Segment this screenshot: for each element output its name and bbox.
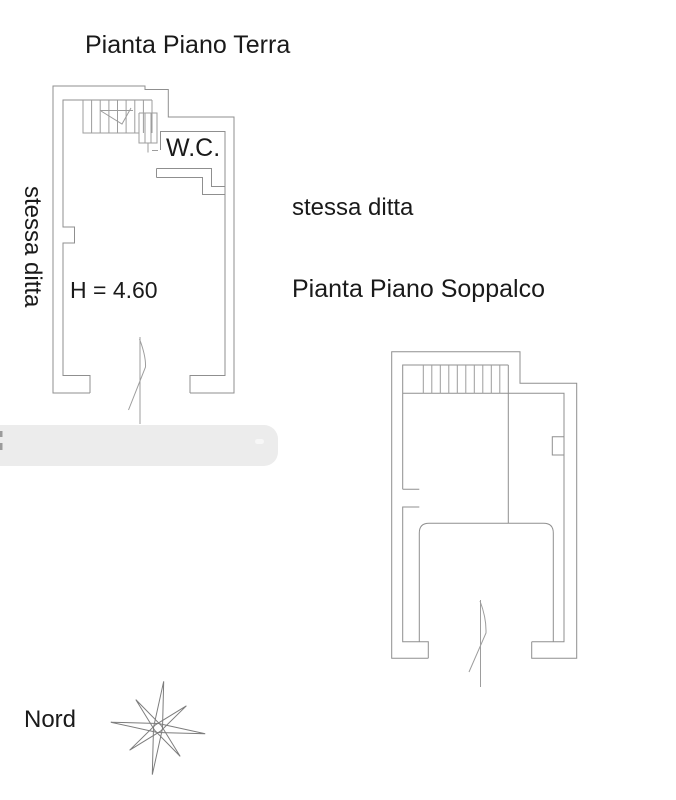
mezzanine-inner-wall-left — [403, 365, 509, 658]
floor-plan-sheet: Pianta Piano Terra stessa ditta W.C. H =… — [0, 0, 676, 800]
plan-drawing — [0, 0, 676, 800]
wc-partition-wall — [157, 169, 226, 195]
ground-floor-door-swing — [129, 337, 146, 424]
redaction-blur-band — [0, 425, 278, 466]
mezzanine-stairs — [423, 365, 500, 393]
neighbor-label-stessa-ditta: stessa ditta — [292, 196, 413, 220]
mezzanine-inner-wall-right — [403, 393, 564, 641]
mezzanine-wall-niche — [552, 437, 564, 455]
mezzanine-door-swing — [469, 600, 486, 687]
mezzanine-title: Pianta Piano Soppalco — [292, 277, 545, 302]
mezzanine-platform-edge — [419, 523, 553, 641]
north-label: Nord — [24, 708, 76, 732]
ceiling-height-annotation: H = 4.60 — [70, 279, 158, 302]
wc-room-label: W.C. — [166, 136, 220, 161]
ground-floor-stair-landing — [139, 113, 157, 153]
mezzanine-plan — [392, 352, 577, 687]
ground-floor-stairs — [83, 100, 152, 133]
compass-star — [111, 681, 205, 774]
side-label-stessa-ditta-vertical: stessa ditta — [20, 186, 44, 307]
ground-floor-title: Pianta Piano Terra — [85, 33, 290, 58]
stair-direction-arrow — [100, 108, 133, 124]
